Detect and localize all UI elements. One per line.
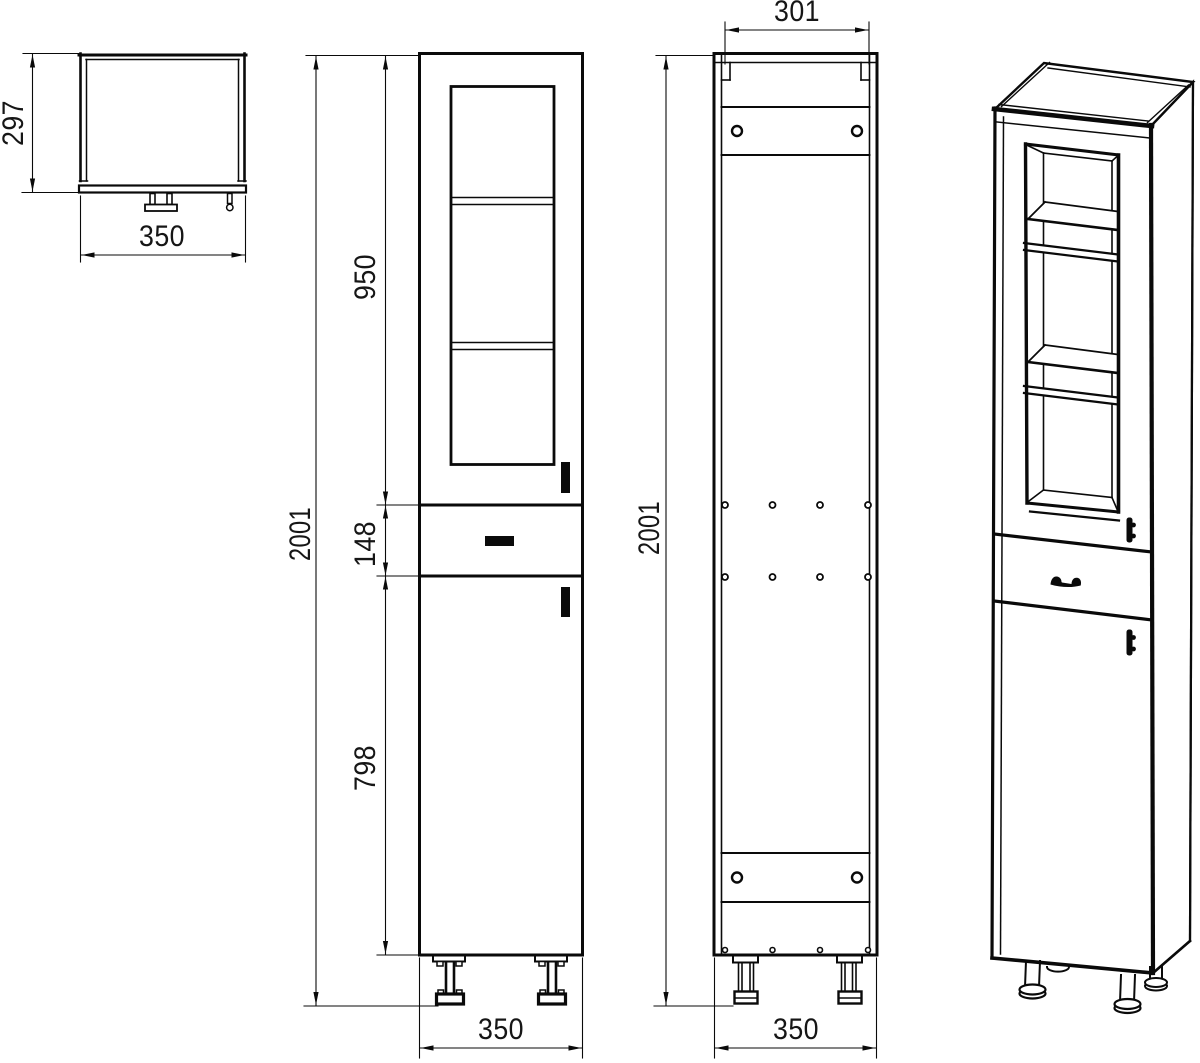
- back-view: 301 2001 350: [633, 0, 877, 1058]
- front-view-glass-door: [451, 87, 554, 465]
- dimension-front-upper-door: 950: [349, 57, 419, 506]
- dim-label-front-total-height: 2001: [284, 507, 317, 561]
- top-view-door-handle: [145, 194, 177, 212]
- front-view-upper-door-handle: [561, 462, 570, 493]
- top-view-door-edge: [79, 186, 246, 193]
- isometric-view: [992, 63, 1193, 1014]
- front-view-drawer-handle: [485, 536, 514, 546]
- front-view-cabinet: [420, 54, 583, 956]
- back-view-right-foot: [837, 956, 862, 1004]
- front-view-right-foot: [535, 956, 567, 1005]
- dimension-front-lower-door: 798: [349, 577, 419, 956]
- back-view-carcass: [714, 54, 877, 956]
- dim-label-front-lower-door: 798: [349, 745, 382, 791]
- dimension-front-width: 350: [420, 958, 583, 1058]
- front-view-left-foot: [433, 956, 465, 1005]
- dim-label-top-width: 350: [139, 220, 185, 253]
- dim-label-front-drawer: 148: [349, 521, 382, 567]
- dim-label-back-total-height: 2001: [633, 501, 666, 555]
- back-view-left-foot: [733, 956, 758, 1004]
- drawing-sheet: 297 350: [0, 0, 1200, 1063]
- dim-label-back-inner-width: 301: [774, 0, 820, 28]
- dim-label-back-width: 350: [773, 1013, 819, 1046]
- iso-front-right-foot: [1115, 975, 1141, 1013]
- iso-back-left-foot: [1047, 967, 1069, 972]
- dimension-front-drawer: 148: [349, 506, 419, 577]
- front-view: 2001 950 148 798: [284, 54, 583, 1059]
- cabinet-technical-drawing: 297 350: [0, 0, 1200, 1063]
- top-view-hinge-pin: [227, 194, 233, 211]
- dim-label-front-upper-door: 950: [349, 254, 382, 300]
- top-view-cabinet-outline: [79, 54, 246, 193]
- front-view-lower-door-handle: [561, 587, 570, 617]
- dim-label-top-depth: 297: [0, 100, 30, 146]
- dimension-top-depth: 297: [0, 54, 84, 193]
- top-view: 297 350: [0, 54, 246, 263]
- iso-right-face: [1151, 82, 1193, 973]
- dim-label-front-width: 350: [478, 1013, 524, 1046]
- iso-front-left-foot: [1020, 961, 1046, 999]
